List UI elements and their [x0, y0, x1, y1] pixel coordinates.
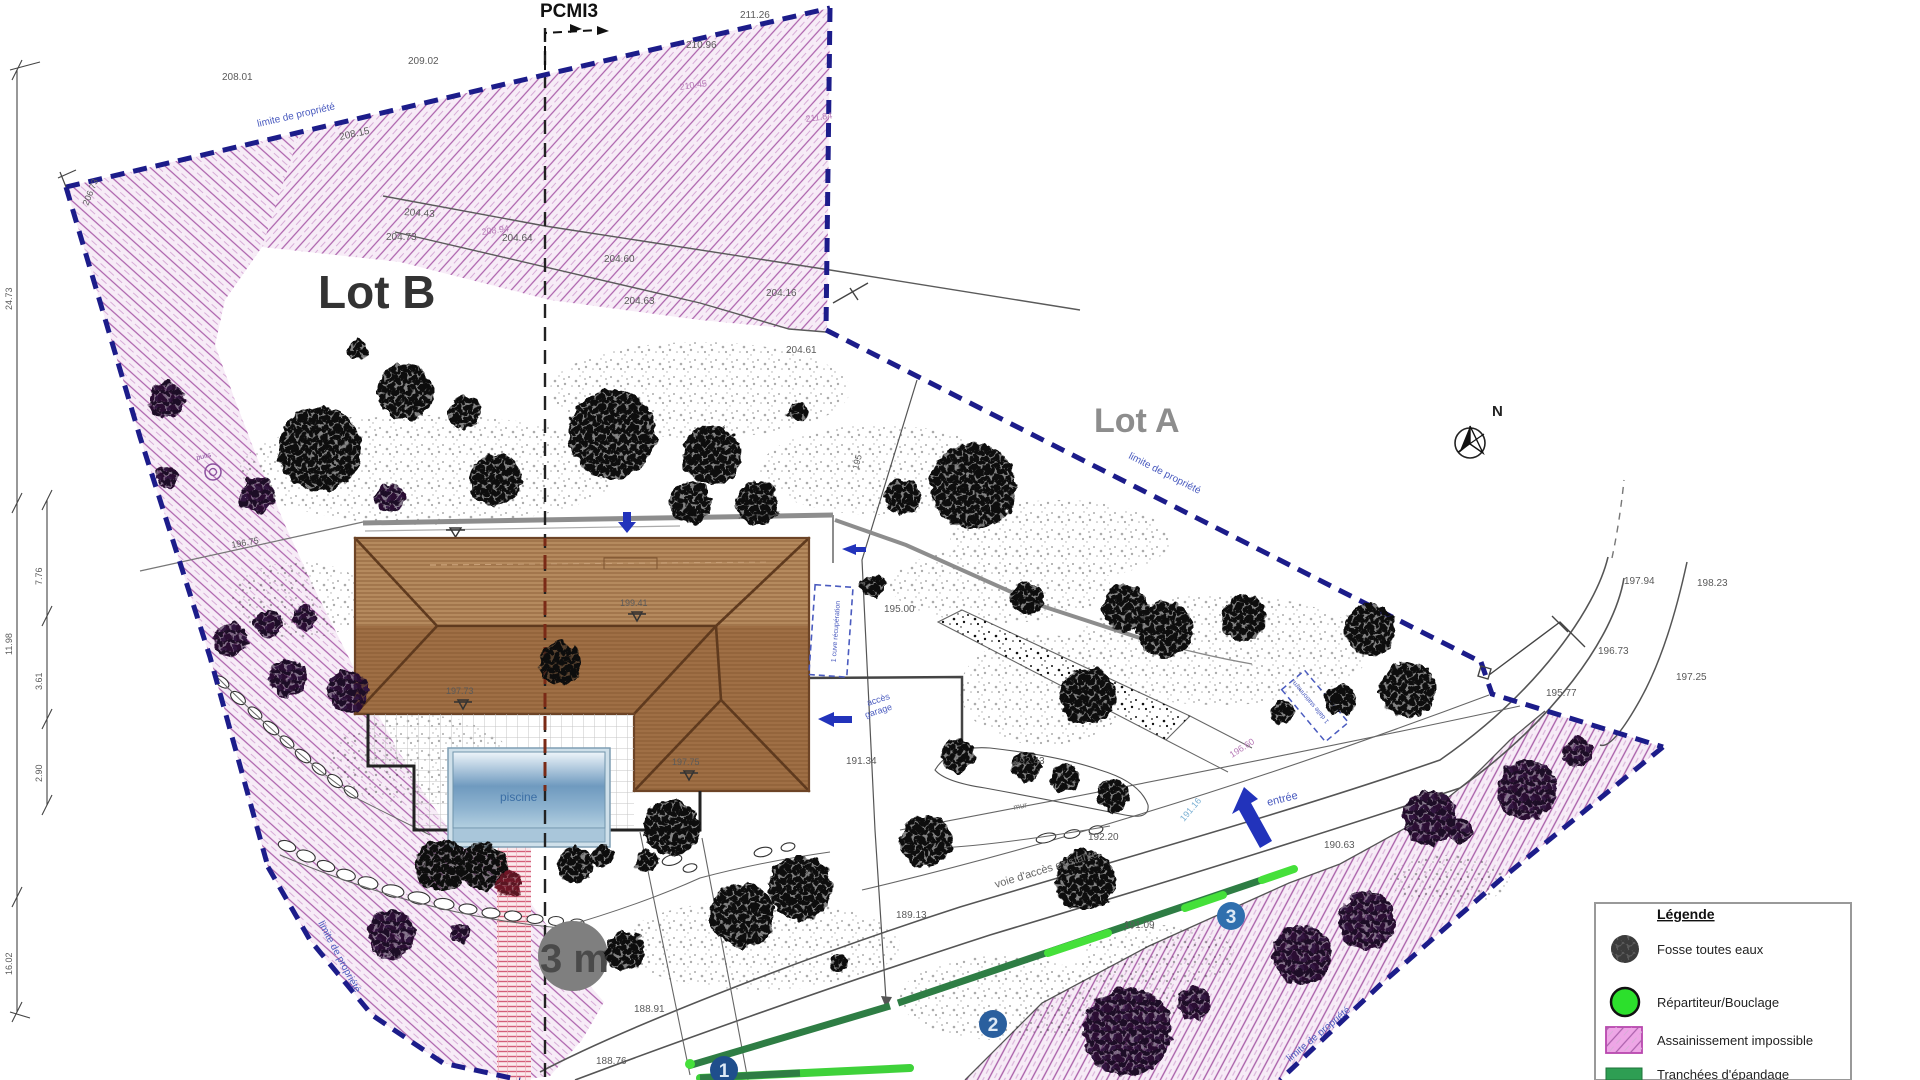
svg-text:11.98: 11.98	[4, 633, 14, 655]
svg-text:16.02: 16.02	[4, 952, 14, 975]
svg-text:195.77: 195.77	[1546, 688, 1577, 699]
svg-text:Légende: Légende	[1657, 906, 1715, 922]
svg-text:204.61: 204.61	[786, 345, 817, 356]
svg-text:7.76: 7.76	[34, 567, 44, 585]
svg-text:197.73: 197.73	[446, 686, 474, 696]
svg-text:196.73: 196.73	[1598, 646, 1629, 657]
svg-text:192.20: 192.20	[1088, 832, 1119, 843]
svg-text:197.94: 197.94	[1624, 576, 1655, 587]
svg-text:204.64: 204.64	[502, 233, 533, 244]
svg-text:204.16: 204.16	[766, 288, 797, 299]
svg-text:1: 1	[719, 1061, 730, 1080]
svg-text:208.01: 208.01	[222, 72, 253, 83]
svg-text:Lot B: Lot B	[318, 266, 436, 318]
svg-text:PCMI3: PCMI3	[540, 1, 598, 22]
svg-text:189.13: 189.13	[896, 910, 927, 921]
svg-text:210.96: 210.96	[686, 40, 717, 51]
svg-text:197.25: 197.25	[1676, 672, 1707, 683]
svg-text:Répartiteur/Bouclage: Répartiteur/Bouclage	[1657, 995, 1779, 1010]
svg-text:204.43: 204.43	[404, 207, 436, 220]
svg-text:198.23: 198.23	[1697, 578, 1728, 589]
svg-text:Tranchées d'épandage: Tranchées d'épandage	[1657, 1067, 1789, 1080]
svg-text:N: N	[1492, 403, 1503, 420]
svg-text:2: 2	[988, 1015, 999, 1036]
svg-text:Lot A: Lot A	[1094, 402, 1180, 440]
svg-text:3 m: 3 m	[540, 937, 609, 981]
svg-text:3: 3	[1226, 907, 1237, 928]
svg-text:24.73: 24.73	[4, 287, 14, 310]
svg-text:Fosse toutes eaux: Fosse toutes eaux	[1657, 942, 1764, 957]
svg-text:197.75: 197.75	[672, 757, 700, 767]
svg-text:190.63: 190.63	[1324, 840, 1355, 851]
svg-text:piscine: piscine	[500, 790, 538, 804]
svg-text:Assainissement impossible: Assainissement impossible	[1657, 1033, 1813, 1048]
svg-text:204.73: 204.73	[386, 232, 417, 243]
svg-text:211.26: 211.26	[740, 10, 770, 21]
svg-text:188.76: 188.76	[596, 1056, 627, 1067]
svg-text:2.90: 2.90	[34, 764, 44, 782]
svg-text:204.60: 204.60	[604, 254, 635, 265]
svg-text:199.41: 199.41	[620, 598, 648, 608]
svg-text:191.34: 191.34	[846, 756, 877, 767]
svg-text:192.43: 192.43	[1014, 756, 1045, 767]
svg-text:209.02: 209.02	[408, 56, 439, 67]
svg-text:188.91: 188.91	[634, 1004, 665, 1015]
svg-text:195.00: 195.00	[884, 604, 915, 615]
svg-text:191.09: 191.09	[1124, 920, 1155, 931]
svg-text:204.63: 204.63	[624, 296, 655, 307]
svg-text:3.61: 3.61	[34, 672, 44, 690]
